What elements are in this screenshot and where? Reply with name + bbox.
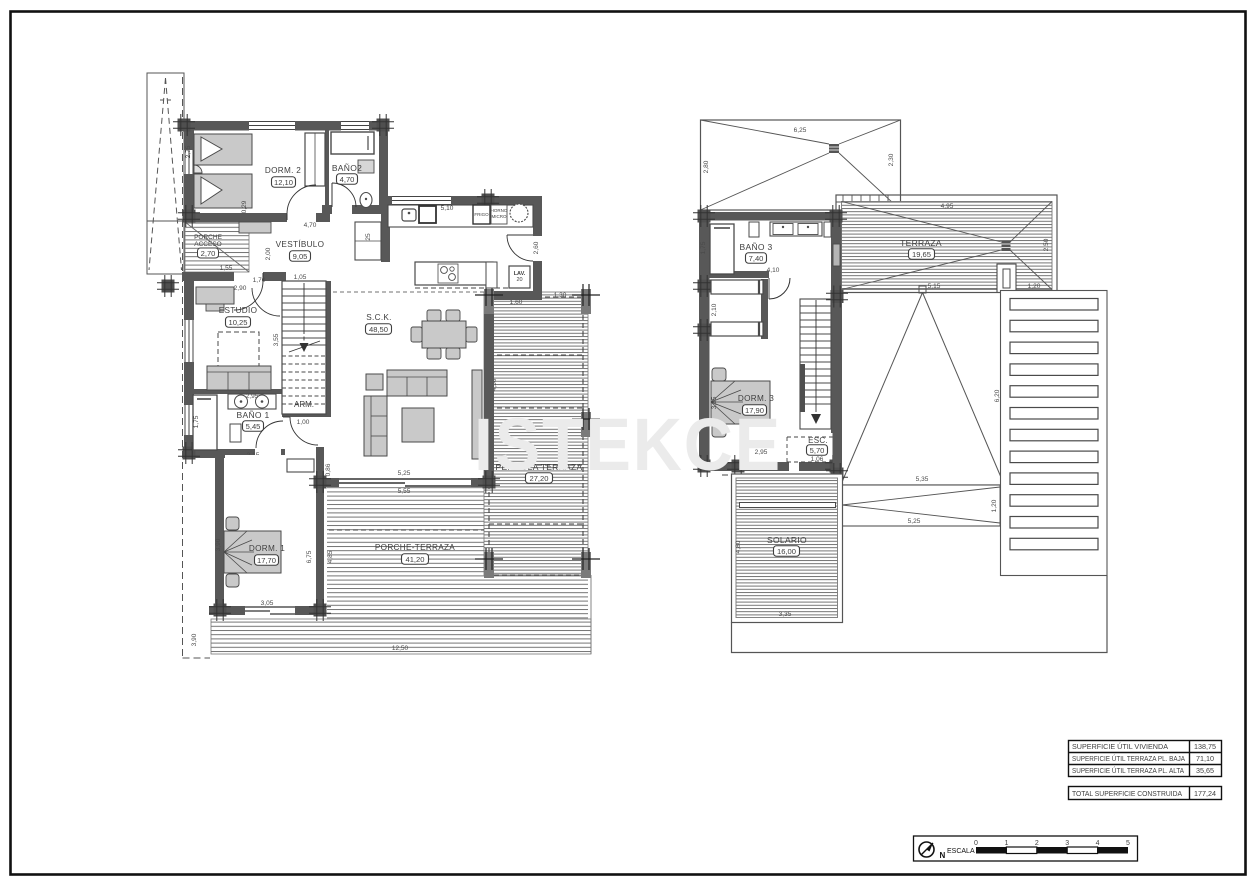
svg-text:S.C.K.: S.C.K. (366, 313, 391, 322)
svg-text:2,80: 2,80 (703, 160, 710, 173)
svg-text:2,60: 2,60 (533, 241, 540, 254)
svg-text:ESTUDIO: ESTUDIO (219, 306, 258, 315)
svg-text:6,25: 6,25 (794, 127, 807, 134)
svg-text:BAÑO 1: BAÑO 1 (237, 410, 270, 420)
svg-text:177,24: 177,24 (1194, 789, 1216, 798)
svg-text:5,70: 5,70 (810, 446, 825, 455)
svg-text:17,70: 17,70 (257, 556, 276, 565)
svg-text:PORCHE: PORCHE (194, 234, 222, 241)
svg-text:20: 20 (516, 277, 522, 283)
svg-text:5,25: 5,25 (398, 470, 411, 477)
svg-text:3,90: 3,90 (215, 538, 222, 551)
svg-text:TERRAZA: TERRAZA (900, 238, 942, 248)
svg-text:1,20: 1,20 (991, 499, 998, 512)
svg-text:5,55: 5,55 (398, 488, 411, 495)
svg-text:SOLARIO: SOLARIO (767, 535, 807, 545)
svg-text:7,40: 7,40 (749, 254, 764, 263)
svg-text:5: 5 (1126, 840, 1130, 847)
svg-text:3,35: 3,35 (779, 611, 792, 618)
svg-text:1: 1 (1004, 840, 1008, 847)
svg-text:DORM. 1: DORM. 1 (249, 544, 285, 553)
svg-text:4,70: 4,70 (340, 175, 355, 184)
svg-text:ARM.: ARM. (294, 400, 314, 409)
svg-text:5,35: 5,35 (916, 476, 929, 483)
svg-text:ISTEKCE: ISTEKCE (474, 403, 782, 486)
svg-text:6,75: 6,75 (306, 550, 313, 563)
svg-text:1,75: 1,75 (700, 241, 707, 254)
svg-text:MICRO: MICRO (492, 214, 507, 219)
svg-text:1,05: 1,05 (294, 274, 307, 281)
svg-text:4,70: 4,70 (304, 222, 317, 229)
svg-text:1,55: 1,55 (220, 265, 233, 272)
svg-text:DORM. 3: DORM. 3 (738, 394, 774, 403)
svg-text:1,60: 1,60 (510, 299, 523, 306)
svg-text:VESTÍBULO: VESTÍBULO (276, 239, 325, 249)
svg-text:1,30: 1,30 (554, 292, 567, 299)
svg-text:1,20: 1,20 (1028, 283, 1041, 290)
svg-text:4,80: 4,80 (735, 540, 742, 553)
svg-text:DORM. 2: DORM. 2 (265, 166, 301, 175)
svg-text:3,90: 3,90 (191, 633, 198, 646)
svg-text:2: 2 (1035, 840, 1039, 847)
svg-text:1,75: 1,75 (193, 415, 200, 428)
svg-text:5,45: 5,45 (246, 422, 261, 431)
svg-text:4: 4 (1096, 840, 1100, 847)
svg-text:48,50: 48,50 (369, 325, 388, 334)
svg-text:1,70: 1,70 (253, 277, 266, 284)
svg-text:ESCALA :: ESCALA : (947, 848, 978, 855)
svg-text:16,00: 16,00 (777, 547, 796, 556)
svg-text:3,05: 3,05 (261, 600, 274, 607)
svg-text:5,25: 5,25 (908, 518, 921, 525)
svg-text:TOTAL SUPERFICIE CONSTRUIDA: TOTAL SUPERFICIE CONSTRUIDA (1072, 789, 1182, 798)
svg-text:0,86: 0,86 (325, 463, 332, 476)
svg-text:PORCHE-TERRAZA: PORCHE-TERRAZA (375, 543, 455, 552)
svg-text:138,75: 138,75 (1194, 742, 1216, 751)
svg-text:3: 3 (1065, 840, 1069, 847)
svg-text:SUPERFICIE ÚTIL VIVIENDA: SUPERFICIE ÚTIL VIVIENDA (1072, 742, 1168, 751)
svg-text:3,55: 3,55 (273, 333, 280, 346)
svg-text:12,50: 12,50 (392, 645, 409, 652)
svg-text:2,95: 2,95 (246, 393, 259, 400)
svg-text:5,15: 5,15 (928, 283, 941, 290)
svg-text:35,65: 35,65 (1196, 766, 1214, 775)
svg-text:FRIGO: FRIGO (474, 212, 489, 217)
svg-text:SUPERFICIE ÚTIL TERRAZA PL. AL: SUPERFICIE ÚTIL TERRAZA PL. ALTA (1072, 766, 1184, 775)
svg-text:SUPERFICIE ÚTIL TERRAZA PL. BA: SUPERFICIE ÚTIL TERRAZA PL. BAJA (1072, 754, 1185, 763)
svg-text:BAÑO 3: BAÑO 3 (740, 242, 773, 252)
svg-text:4,95: 4,95 (941, 203, 954, 210)
svg-text:2,10: 2,10 (711, 303, 718, 316)
svg-text:2,75: 2,75 (185, 145, 192, 158)
svg-text:25: 25 (365, 233, 372, 241)
svg-text:2,30: 2,30 (888, 153, 895, 166)
svg-text:1,00: 1,00 (297, 419, 310, 426)
svg-text:19,65: 19,65 (912, 250, 931, 259)
svg-text:10,25: 10,25 (228, 318, 247, 327)
svg-text:41,20: 41,20 (405, 555, 424, 564)
svg-text:2,00: 2,00 (265, 247, 272, 260)
svg-text:BAÑO2: BAÑO2 (332, 163, 362, 173)
svg-text:0: 0 (974, 840, 978, 847)
svg-text:4,10: 4,10 (767, 267, 780, 274)
svg-text:5,10: 5,10 (441, 205, 454, 212)
svg-text:4,85: 4,85 (327, 550, 334, 563)
svg-text:2,90: 2,90 (234, 285, 247, 292)
svg-text:HORNO: HORNO (491, 208, 508, 213)
svg-text:2,70: 2,70 (201, 249, 216, 258)
svg-text:2,50: 2,50 (1043, 238, 1050, 251)
svg-text:9,05: 9,05 (293, 252, 308, 261)
svg-text:ACCESO: ACCESO (194, 241, 221, 248)
svg-text:12,10: 12,10 (274, 178, 293, 187)
svg-text:N: N (940, 851, 946, 860)
svg-text:71,10: 71,10 (1196, 754, 1214, 763)
svg-text:0,29: 0,29 (241, 200, 248, 213)
